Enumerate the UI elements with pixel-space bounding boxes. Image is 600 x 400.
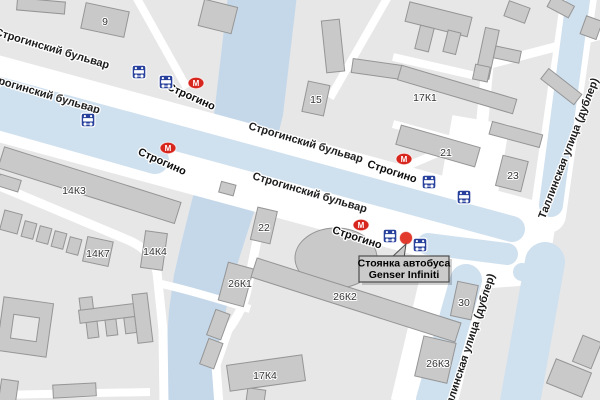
metro-icon[interactable]: М [396,153,412,164]
metro-icon[interactable]: М [353,219,369,230]
building-label-14k7: 14К7 [86,248,110,260]
svg-text:М: М [401,155,408,164]
bus-stop-icon[interactable] [457,190,472,205]
red-dot-marker[interactable] [400,232,413,245]
bus-stop-icon[interactable] [81,113,96,128]
building-label-17k4: 17К4 [253,370,277,382]
map-svg: 9 15 17К1 21 23 14К3 14К7 14К4 22 26К1 2… [0,0,600,400]
building-label-15: 15 [310,94,322,106]
metro-icon[interactable]: М [160,142,176,153]
building-label-26k1: 26К1 [228,278,252,290]
building-label-22: 22 [258,222,270,234]
building-label-26k2: 26К2 [333,291,357,303]
building-14k7: 14К7 [83,237,114,267]
bus-stop-icon[interactable] [413,238,428,253]
map-canvas[interactable]: 9 15 17К1 21 23 14К3 14К7 14К4 22 26К1 2… [0,0,600,400]
building-label-9: 9 [102,16,108,28]
svg-text:М: М [358,221,365,230]
bus-stop-icon[interactable] [422,175,437,190]
callout-line1: Стоянка автобуса [358,258,451,270]
building-label-14k4: 14К4 [143,246,167,258]
metro-icon[interactable]: М [188,77,204,88]
bus-stop-icon[interactable] [159,75,174,90]
building-label-26k3: 26К3 [426,358,450,370]
building-label-21: 21 [440,147,452,159]
svg-text:М: М [165,144,172,153]
bus-stop-icon[interactable] [383,229,398,244]
svg-text:М: М [193,79,200,88]
building-label-14k3: 14К3 [62,185,86,197]
bus-stop-icon[interactable] [132,65,147,80]
building-14k4: 14К4 [140,231,167,271]
building-label-30: 30 [458,297,470,309]
building-label-23: 23 [507,170,519,182]
building-label-17k1: 17К1 [413,92,437,104]
callout-line2: Genser Infiniti [369,269,440,281]
